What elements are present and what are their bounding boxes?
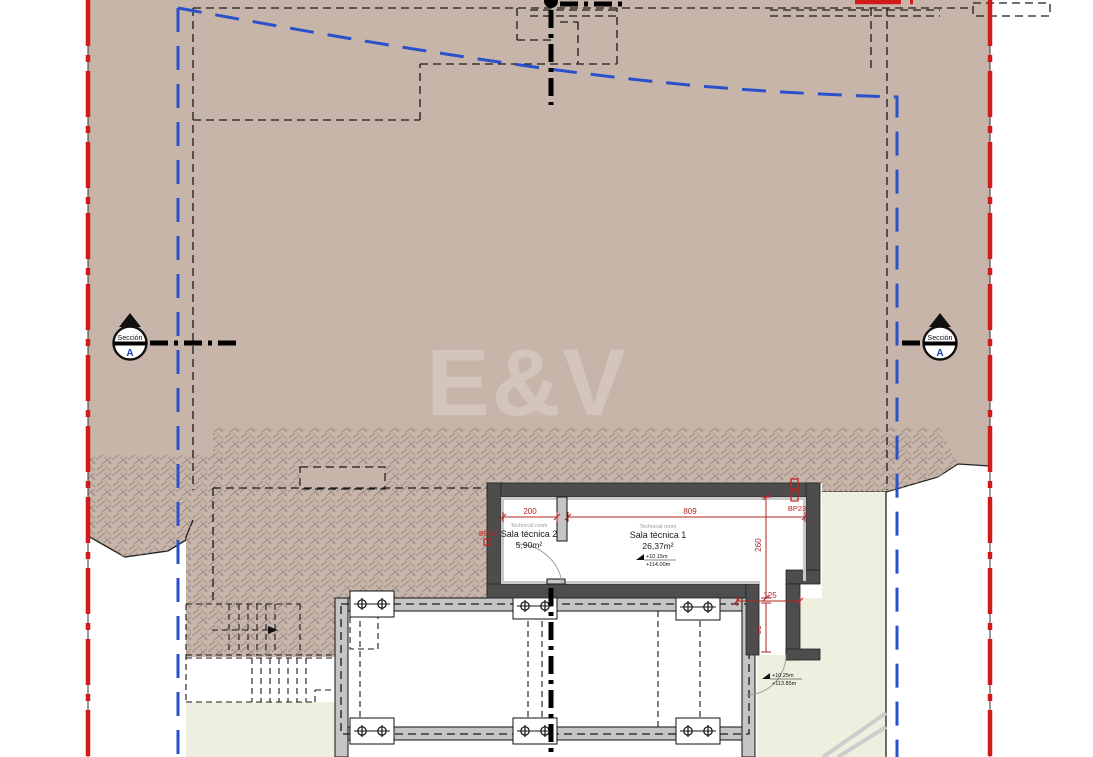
- column-pads: [350, 591, 720, 744]
- structure-inner-dashed: [341, 604, 749, 734]
- room-left-wall: [487, 483, 501, 598]
- room-2-area: 5,90m²: [516, 540, 543, 550]
- pad-bottom-right: [676, 718, 720, 744]
- watermark-logo: E&V: [426, 330, 627, 436]
- section-letter-right: A: [936, 348, 943, 359]
- pad-bottom-left: [350, 718, 394, 744]
- section-title-left: Sección: [118, 335, 143, 342]
- drain-bp23-label: BP23: [788, 504, 806, 513]
- dim-125: 125: [763, 591, 777, 600]
- passage-right-wall: [786, 584, 800, 660]
- dim-81: 81: [754, 625, 763, 634]
- lining-top: [501, 497, 806, 500]
- level-room-absolute: +114.00m: [646, 562, 671, 568]
- room-1-name: Sala técnica 1: [630, 530, 687, 540]
- room-right-wall: [806, 483, 820, 570]
- lining-bottom: [501, 581, 760, 584]
- room-bottom-wall: [487, 584, 746, 598]
- room-top-wall: [487, 483, 820, 497]
- room-2-name: Sala técnica 2: [501, 529, 558, 539]
- level-passage-relative: +10.25m: [772, 673, 794, 679]
- lower-structure: [335, 591, 755, 757]
- hidden-opening-rect: [300, 467, 385, 489]
- dim-260: 260: [754, 538, 763, 552]
- floor-plan-canvas: E&V: [0, 0, 1093, 757]
- garden-bottom-left: [186, 702, 335, 757]
- level-room-relative: +10.15m: [646, 554, 668, 560]
- pad-top-left: [350, 591, 394, 617]
- passage-floor: [759, 598, 786, 655]
- section-title-right: Sección: [928, 335, 953, 342]
- floor-plan-drawing: E&V: [0, 0, 1093, 757]
- drain-bp22-label: BP22: [479, 529, 497, 538]
- dim-809: 809: [683, 507, 697, 516]
- passage-end-wall: [786, 649, 820, 660]
- room-1-area: 26,37m²: [642, 541, 673, 551]
- passage-left-wall: [746, 584, 759, 655]
- section-letter-left: A: [126, 348, 133, 359]
- level-passage-absolute: +113.85m: [772, 681, 797, 687]
- dim-200: 200: [523, 507, 537, 516]
